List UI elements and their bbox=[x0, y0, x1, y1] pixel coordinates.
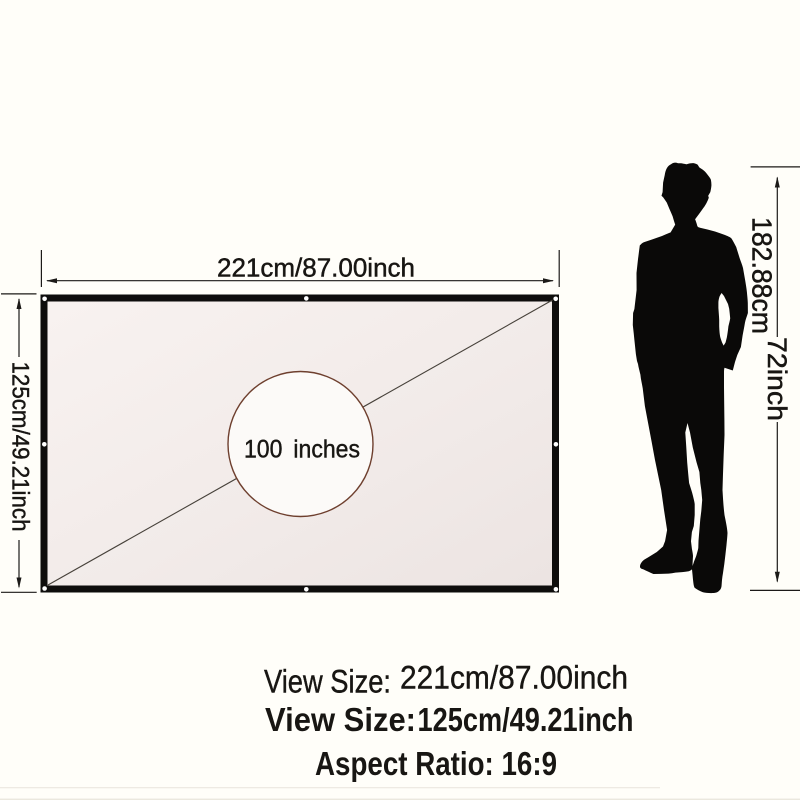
svg-text:100 inches: 100 inches bbox=[244, 435, 360, 463]
svg-text:125cm/49.21inch: 125cm/49.21inch bbox=[7, 362, 34, 532]
svg-text:View Size:: View Size: bbox=[265, 701, 416, 738]
svg-text:182.88cm: 182.88cm bbox=[747, 217, 778, 334]
svg-text:125cm/49.21inch: 125cm/49.21inch bbox=[418, 701, 634, 738]
svg-text:221cm/87.00inch: 221cm/87.00inch bbox=[400, 660, 628, 696]
svg-text:221cm/87.00inch: 221cm/87.00inch bbox=[217, 253, 415, 283]
svg-text:View Size:: View Size: bbox=[264, 664, 391, 700]
svg-text:72inch: 72inch bbox=[762, 337, 792, 421]
svg-text:Aspect Ratio: 16:9: Aspect Ratio: 16:9 bbox=[315, 745, 557, 782]
